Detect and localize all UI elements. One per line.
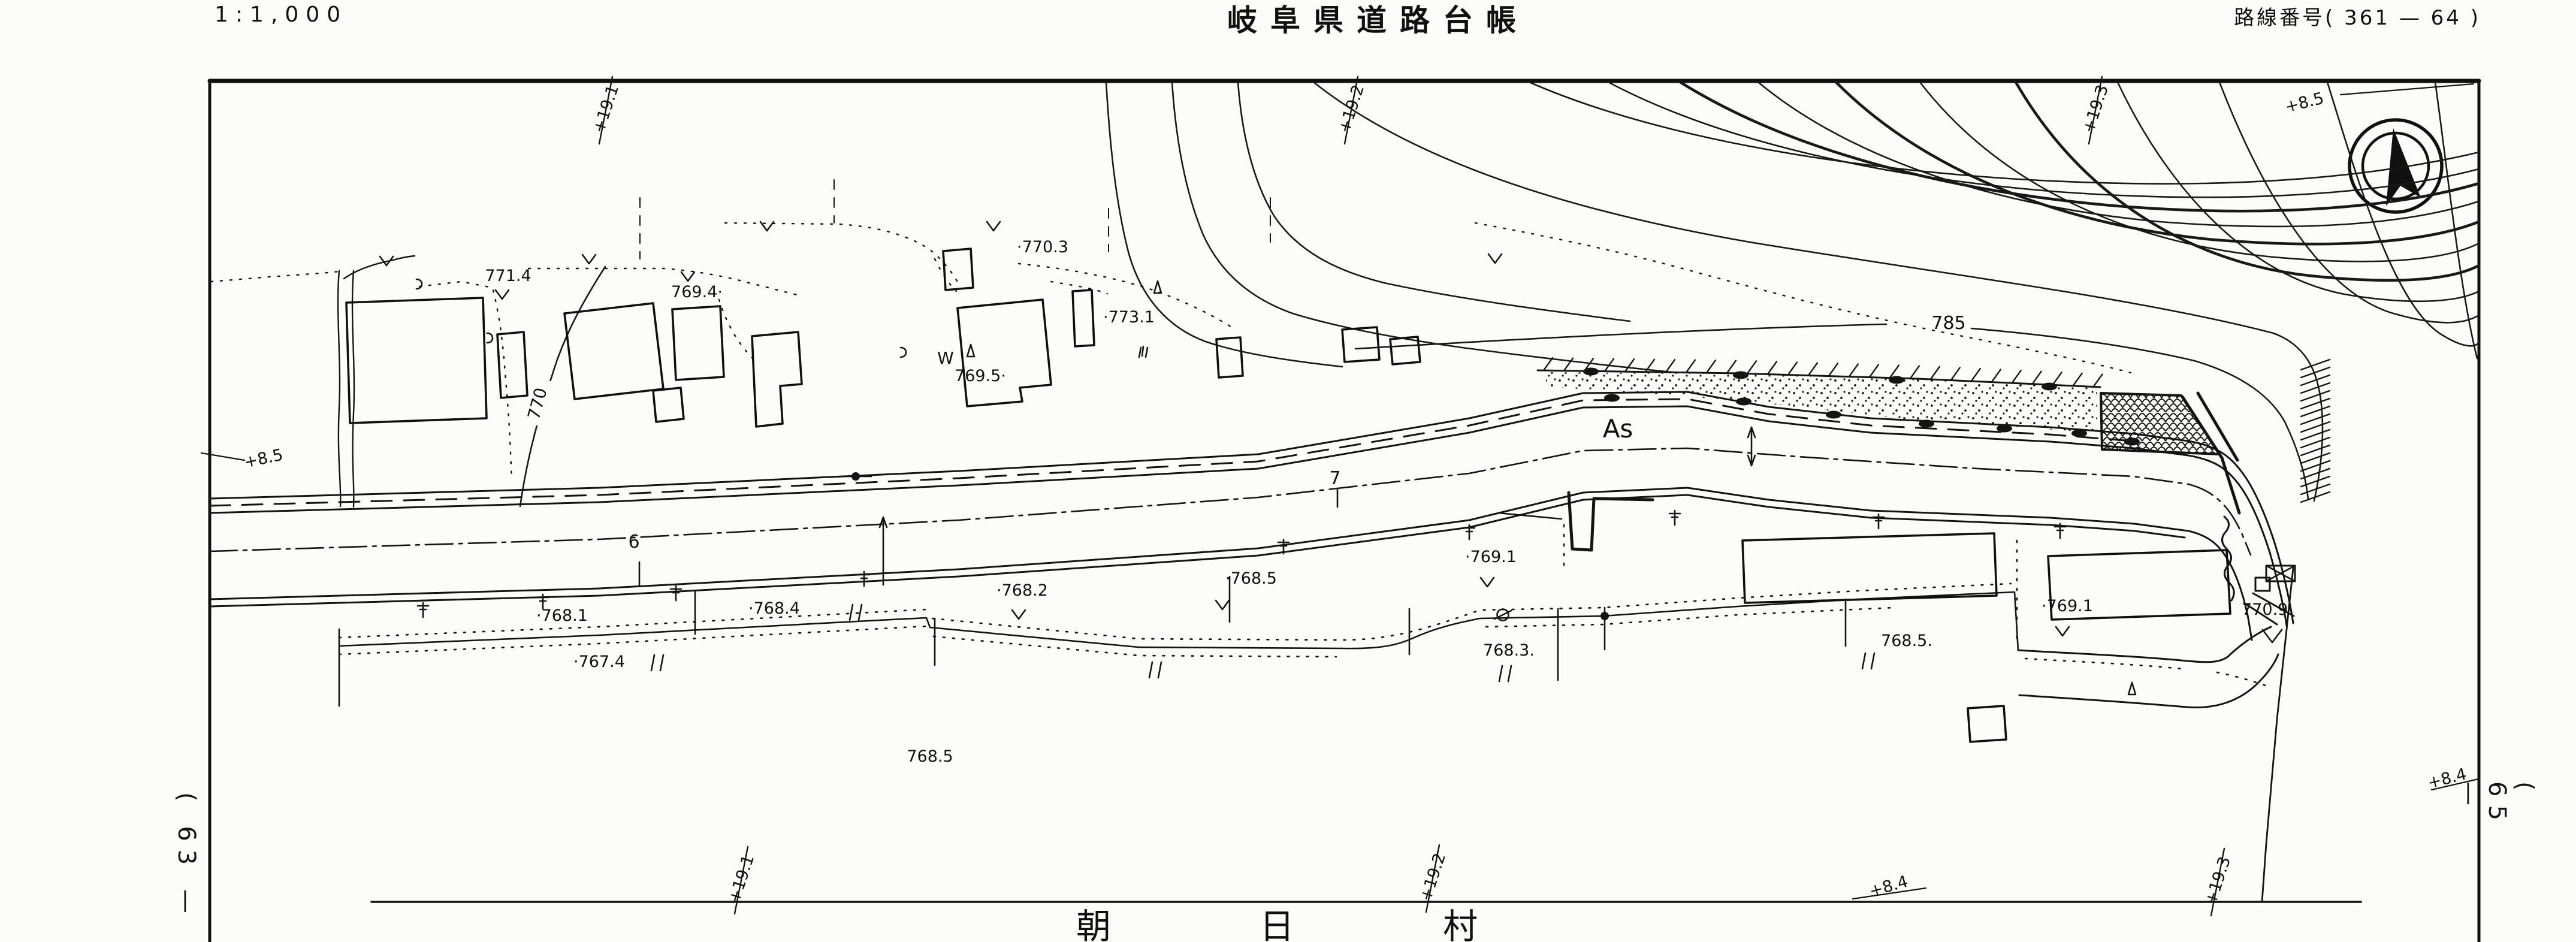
symbol-curl [416,279,422,289]
building [1968,706,2006,742]
symbol-v [496,290,509,299]
building [958,300,1051,406]
symbol-v [1481,578,1494,587]
boundary-tick-label: +19.2 [1417,851,1449,904]
elevation-label: 769.5· [955,367,1006,385]
symbol-par [850,605,862,620]
symbol-v [681,272,694,281]
symbol-pole [1669,511,1680,525]
symbol-pole [671,586,681,600]
boundary-tick-label: +19.3 [2201,855,2234,907]
road-ledger-sheet: 1:1,000 岐阜県道路台帳 路線番号( 361 — 64 ) ( 63 — … [0,0,2576,942]
boundary-tick-leader [201,453,244,460]
boundary-tick-leader [2341,84,2474,95]
symbol-v [1216,600,1229,609]
symbol-v [582,255,596,264]
elevation-label: 768.5. [1881,632,1932,650]
elevation-label: ·770.3 [1017,238,1068,256]
building [653,388,684,422]
parcel-boundaries [339,493,2018,706]
contour-label: 785 [1931,313,1965,334]
station-label: 6 [628,532,639,552]
elevation-label: ·769.1 [1465,548,1517,566]
building [672,306,724,380]
elevation-label: 770.9· [2242,600,2293,619]
municipality-label: 朝日村 [1076,906,1626,942]
symbol-par [1149,662,1161,678]
symbol-curl [901,348,906,357]
symbol-pole [1873,514,1884,529]
elevation-label: 769.4· [671,283,723,301]
boundary-tick-label: +8.5 [2283,89,2326,117]
building [564,303,663,399]
road-centerline [210,448,2251,555]
symbol-par [1499,666,1511,681]
map-canvas: ·770.3771.4769.4··773.1W769.5··768.1·768… [0,0,2576,942]
boundary-tick-label: +19.2 [1335,83,1368,135]
elevation-label: ·767.4 [573,653,625,671]
side-lane [2018,627,2278,708]
symbol-v [760,222,774,231]
building [752,332,802,427]
width-arrow [1748,427,1755,466]
map-labels: ·770.3771.4769.4··773.1W769.5··768.1·768… [485,238,2293,942]
elevation-label: ·768.2 [996,581,1048,600]
building [497,332,527,398]
road [210,392,2293,640]
symbol-v [1488,254,1502,263]
boundary-tick-label: +8.5 [243,446,285,472]
symbol-v [1012,610,1025,619]
road-surface-label: As [1603,414,1633,443]
elevation-label: 771.4 [485,267,531,285]
symbol-curl [487,333,493,343]
building [346,298,487,423]
boundary-tick-label: +19.3 [2079,83,2112,135]
elevation-label: 768.3. [1483,641,1535,660]
north-arrow-icon [2349,120,2442,212]
building [943,249,973,290]
elevation-label: ·768.1 [536,606,588,625]
elevation-label: ·768.5 [1225,569,1277,588]
sheet-frame [210,81,2479,942]
symbol-pole [418,603,428,617]
symbol-tri [967,345,974,357]
elevation-label: ·768.4 [748,599,800,618]
symbol-tri [1154,281,1161,293]
symbol-vb [2263,630,2282,642]
benchmark-dot [851,472,860,481]
symbol-spar [1139,346,1147,357]
symbol-v [2056,627,2069,636]
boundary-tick-label: +8.4 [1867,872,1910,901]
page-title: 岐阜県道路台帳 [1103,0,1654,40]
adjacent-sheet-left: ( 63 — [173,792,200,922]
elevation-label: ·769.1 [2042,597,2093,615]
building [1073,290,1094,346]
symbol-par [651,655,663,671]
map-scale: 1:1,000 [215,2,406,27]
symbol-v [987,222,1000,231]
building [1743,533,1997,603]
well-mark-label: W [937,348,954,368]
section-arrow [880,517,887,585]
route-number: 路線番号( 361 — 64 ) [2025,1,2481,31]
boundary-tick-label: +19.1 [590,83,623,135]
elevation-label: ·773.1 [1103,308,1155,327]
station-label: 7 [1329,468,1340,489]
stone-wall [2101,393,2295,902]
symbol-tri [2128,683,2136,695]
adjacent-sheet-right: ( 65 — [2456,781,2538,829]
boundary-tick-label: +19.1 [725,853,758,905]
benchmark-dot [1600,612,1609,620]
elevation-label: 768.5 [907,747,953,766]
building [1216,337,1243,378]
symbol-par [1862,653,1874,669]
